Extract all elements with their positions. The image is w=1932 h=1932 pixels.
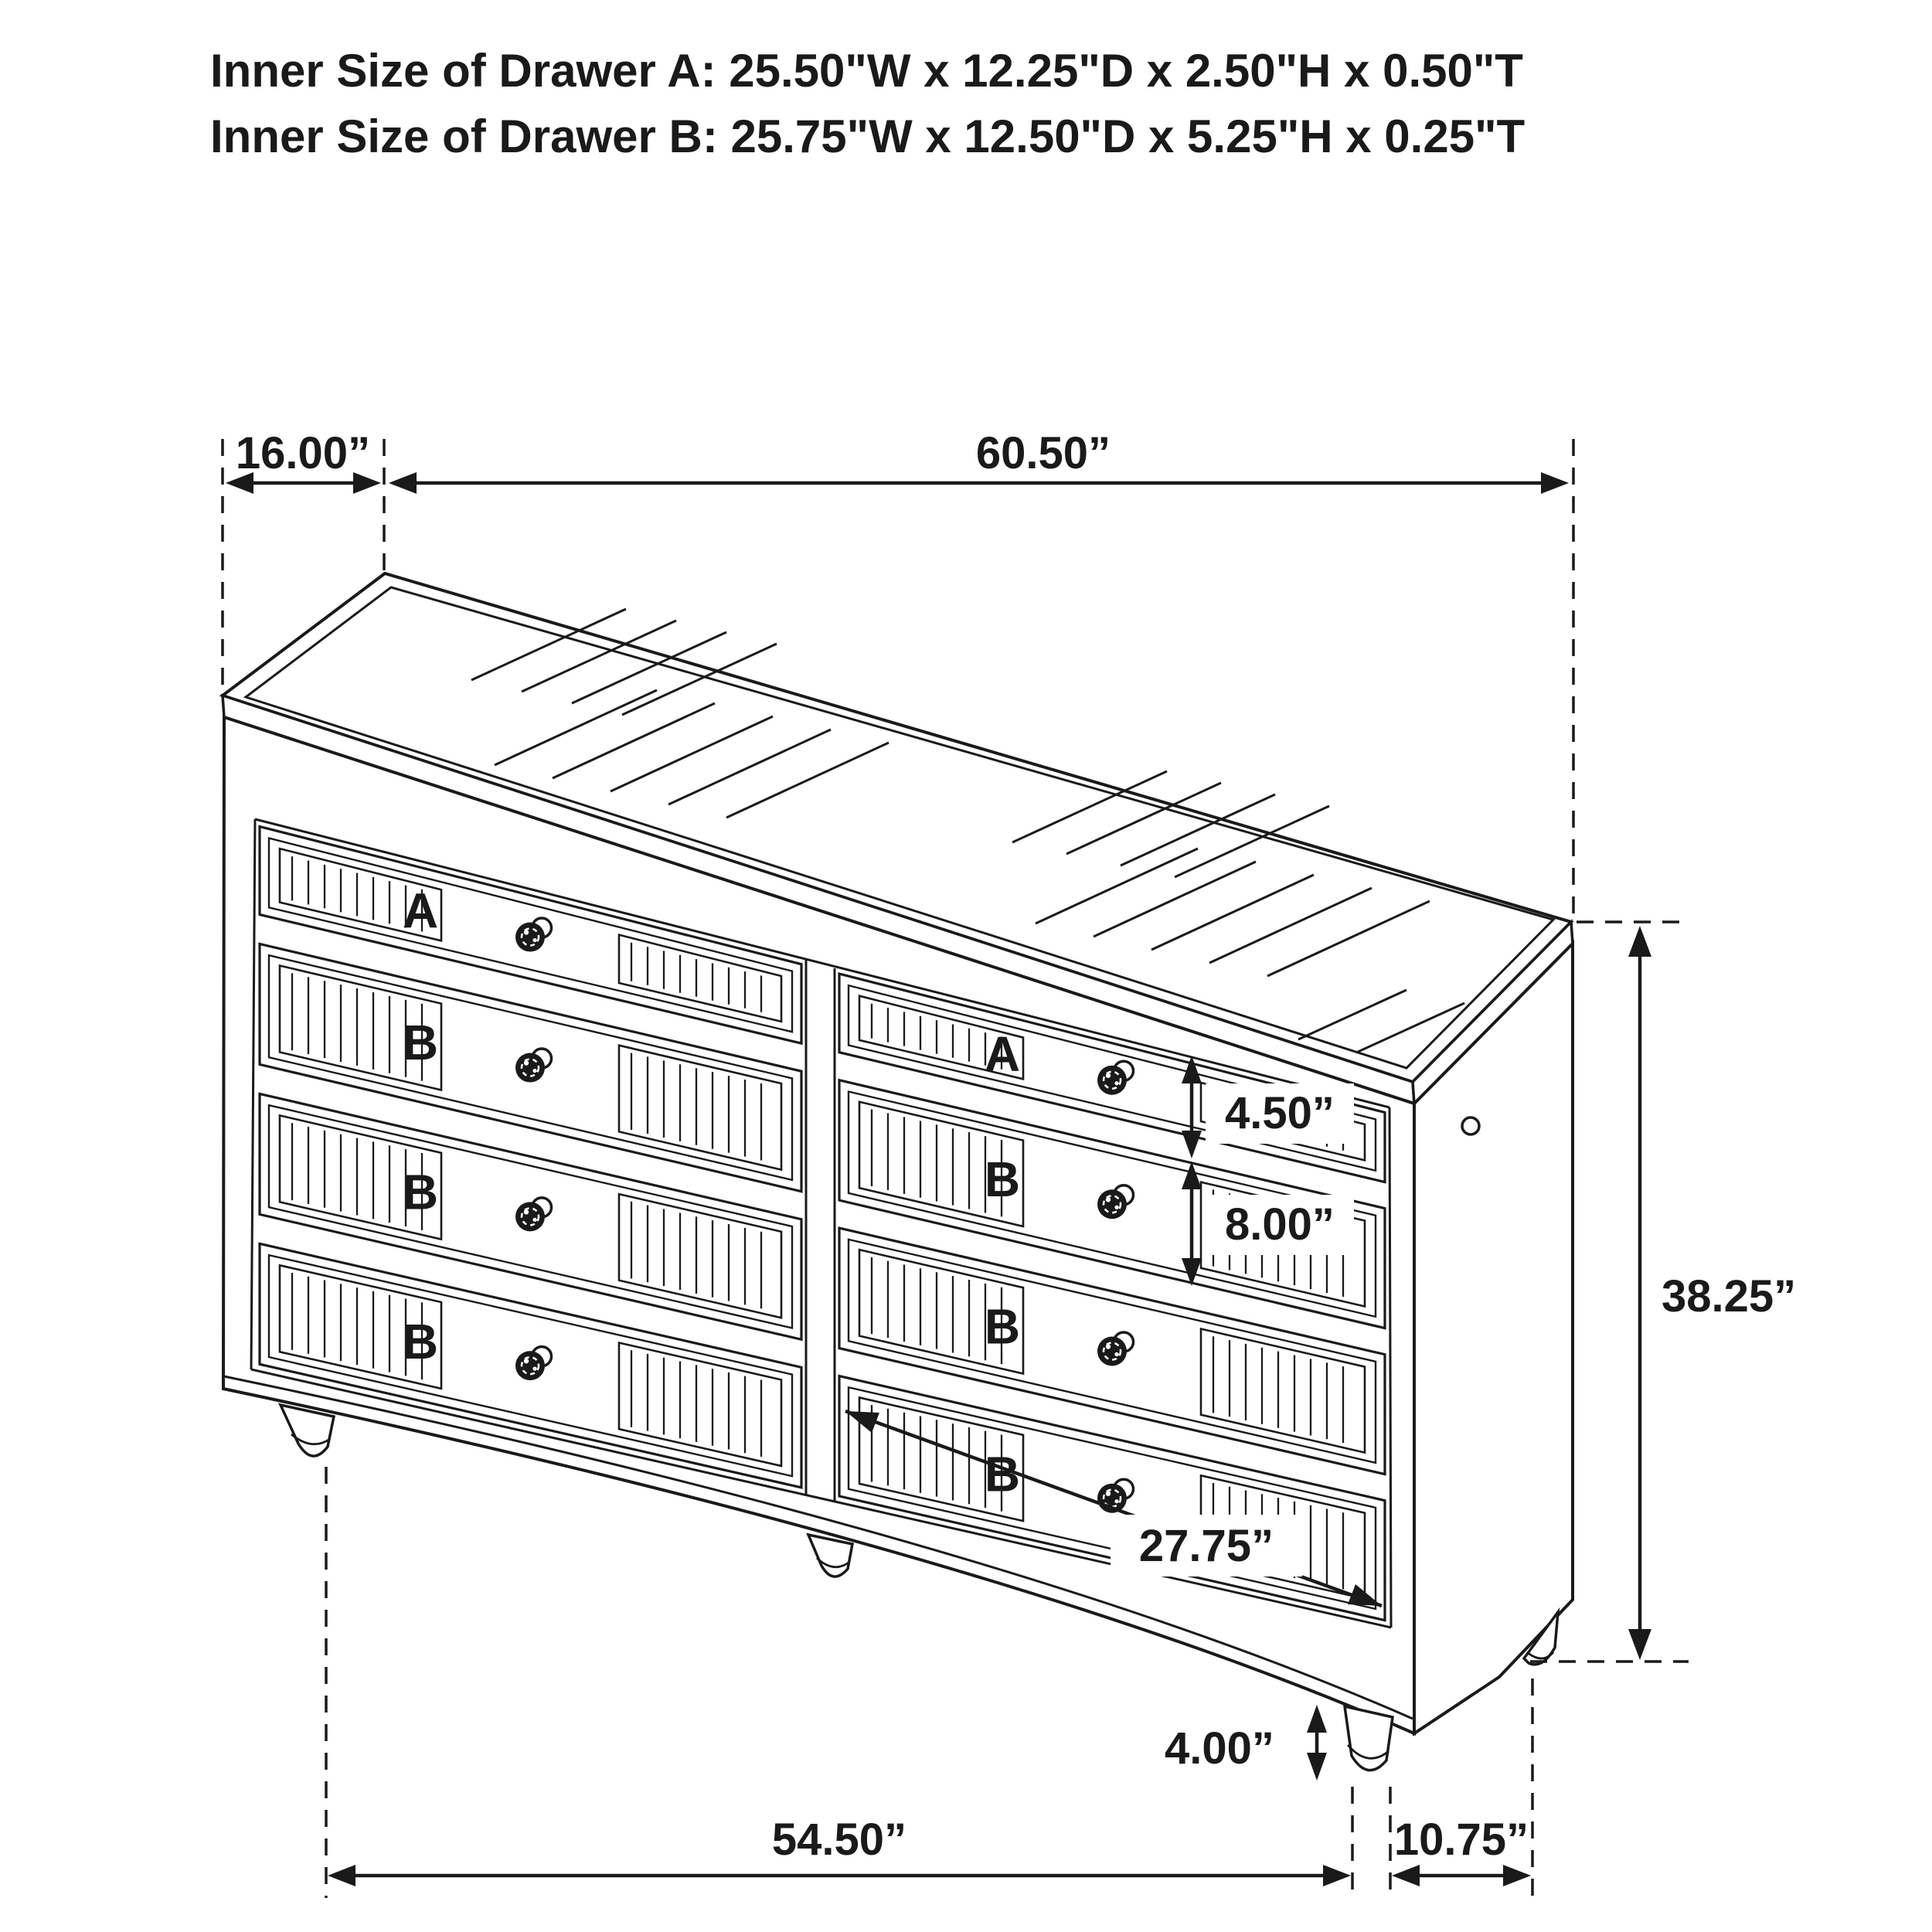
bottom-side-depth-label: 10.75” (1394, 1815, 1529, 1865)
drawer-letter: B (403, 1015, 438, 1070)
header-line-2: Inner Size of Drawer B: 25.75"W x 12.50"… (210, 111, 1525, 162)
top-depth-label: 16.00” (236, 428, 370, 478)
drawer-letter: B (403, 1164, 438, 1219)
header-line-1: Inner Size of Drawer A: 25.50"W x 12.25"… (210, 45, 1523, 97)
drawer-letter: A (403, 883, 438, 939)
drawer-letter: B (985, 1151, 1020, 1207)
bottom-width-label: 54.50” (772, 1815, 906, 1865)
drawer-letter: B (985, 1299, 1020, 1355)
drawer-b-height-label: 8.00” (1225, 1199, 1335, 1250)
leg-height-label: 4.00” (1165, 1723, 1274, 1774)
drawer-letter: B (403, 1314, 438, 1369)
drawer-inner-width-label: 27.75” (1139, 1521, 1274, 1571)
dresser-dimension-diagram: Inner Size of Drawer A: 25.50"W x 12.25"… (0, 0, 1932, 1932)
drawer-letter: A (985, 1026, 1020, 1082)
top-width-label: 60.50” (976, 428, 1111, 478)
drawer-a-height-label: 4.50” (1225, 1088, 1335, 1138)
dresser-dimension-diagram-page: Inner Size of Drawer A: 25.50"W x 12.25"… (0, 0, 1932, 1932)
overall-height-label: 38.25” (1662, 1271, 1796, 1321)
